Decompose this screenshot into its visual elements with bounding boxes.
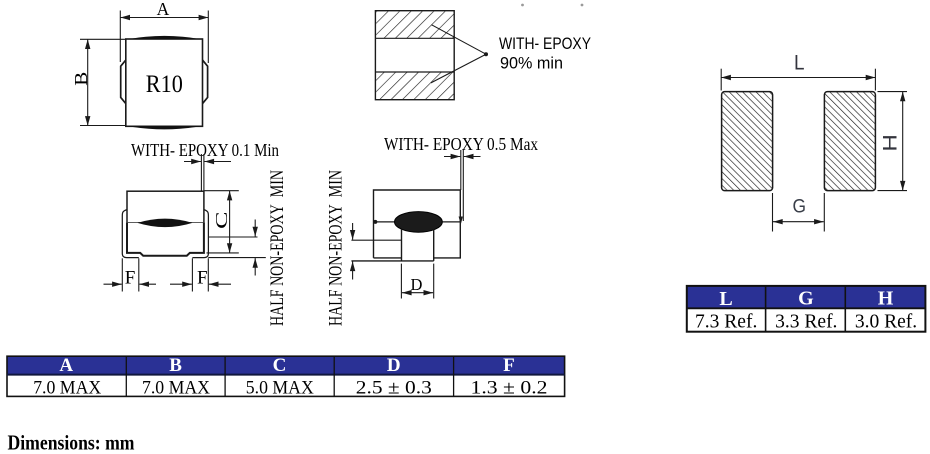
svg-text:A: A xyxy=(157,0,170,19)
svg-text:B: B xyxy=(71,72,91,86)
svg-text:B: B xyxy=(169,355,182,376)
svg-text:90% min: 90% min xyxy=(500,55,563,73)
svg-text:WITH- EPOXY 0.1 Min: WITH- EPOXY 0.1 Min xyxy=(131,140,279,160)
svg-text:L: L xyxy=(719,288,732,310)
svg-text:7.0 MAX: 7.0 MAX xyxy=(142,377,210,398)
svg-text:Dimensions: mm: Dimensions: mm xyxy=(8,431,135,454)
svg-text:F: F xyxy=(125,267,136,288)
svg-text:HALF NON-EPOXY MIN: HALF NON-EPOXY MIN xyxy=(326,170,347,326)
svg-text:G: G xyxy=(793,195,807,217)
svg-text:7.0 MAX: 7.0 MAX xyxy=(33,377,101,398)
svg-text:R10: R10 xyxy=(146,71,183,98)
svg-text:G: G xyxy=(798,287,814,309)
svg-text:L: L xyxy=(794,52,805,75)
svg-text:5.0 MAX: 5.0 MAX xyxy=(246,377,314,398)
svg-text:C: C xyxy=(212,212,231,230)
svg-text:7.3 Ref.: 7.3 Ref. xyxy=(695,312,757,333)
svg-text:F: F xyxy=(503,355,515,376)
svg-text:H: H xyxy=(878,287,894,309)
svg-text:3.0 Ref.: 3.0 Ref. xyxy=(855,312,917,333)
svg-text:D: D xyxy=(387,355,401,376)
svg-text:HALF NON-EPOXY MIN: HALF NON-EPOXY MIN xyxy=(267,170,288,326)
svg-text:WITH- EPOXY: WITH- EPOXY xyxy=(499,35,591,53)
svg-text:A: A xyxy=(59,355,73,376)
svg-text:1.3 ± 0.2: 1.3 ± 0.2 xyxy=(471,377,548,398)
svg-text:C: C xyxy=(273,355,287,376)
svg-text:H: H xyxy=(880,134,902,152)
svg-text:3.3 Ref.: 3.3 Ref. xyxy=(775,312,837,333)
svg-text:F: F xyxy=(197,267,208,288)
svg-text:D: D xyxy=(411,275,423,294)
svg-text:2.5 ± 0.3: 2.5 ± 0.3 xyxy=(356,377,432,398)
